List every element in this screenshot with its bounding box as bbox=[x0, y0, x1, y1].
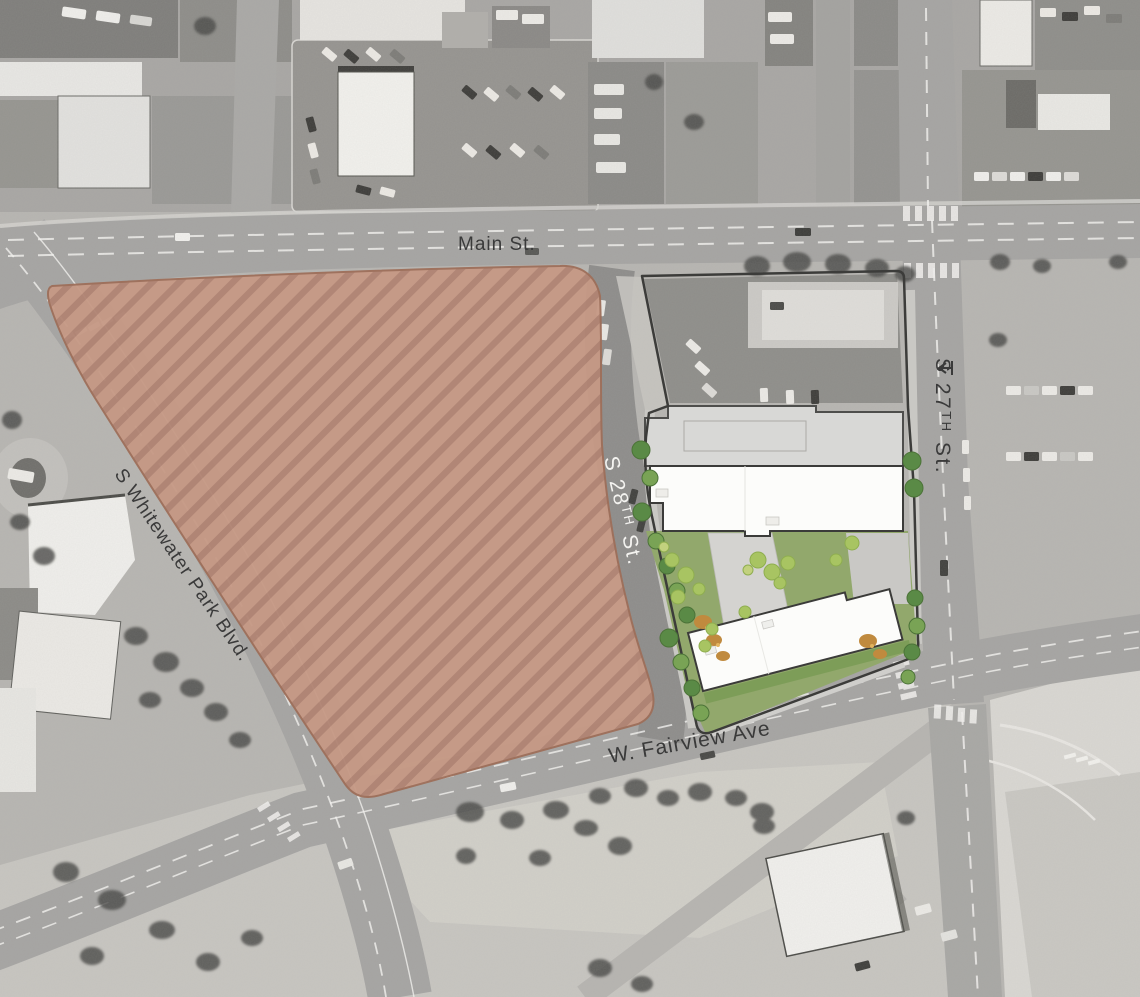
courtyard-tree bbox=[774, 577, 786, 589]
street-tree bbox=[909, 618, 925, 634]
courtyard-tree bbox=[739, 606, 751, 618]
street-tree bbox=[903, 452, 921, 470]
street-label-main: Main St. bbox=[458, 234, 536, 255]
courtyard-tree bbox=[750, 552, 766, 568]
street-tree bbox=[901, 670, 915, 684]
courtyard-tree bbox=[830, 554, 842, 566]
shrub bbox=[859, 634, 877, 648]
courtyard-tree bbox=[659, 542, 669, 552]
existing-building bbox=[645, 406, 903, 466]
roof-detail bbox=[656, 489, 668, 497]
courtyard-tree bbox=[665, 553, 679, 567]
street-tree bbox=[907, 590, 923, 606]
courtyard-tree bbox=[781, 556, 795, 570]
courtyard-tree bbox=[693, 583, 705, 595]
street-tree bbox=[693, 705, 709, 721]
courtyard-tree bbox=[743, 565, 753, 575]
aerial-map: Main St. S 27TH St. S 28TH St. W. Fairvi… bbox=[0, 0, 1140, 997]
courtyard-tree bbox=[671, 590, 685, 604]
street-tree bbox=[905, 479, 923, 497]
shrub bbox=[716, 651, 730, 661]
courtyard-tree bbox=[706, 623, 718, 635]
courtyard-tree bbox=[699, 640, 711, 652]
roof-detail bbox=[766, 517, 779, 525]
street-tree bbox=[684, 680, 700, 696]
courtyard-tree bbox=[678, 567, 694, 583]
shrub bbox=[873, 649, 887, 659]
street-tree bbox=[904, 644, 920, 660]
new-building-1 bbox=[650, 466, 903, 536]
street-tree bbox=[660, 629, 678, 647]
street-tree bbox=[632, 441, 650, 459]
street-tree bbox=[679, 607, 695, 623]
shrub-highlight bbox=[716, 643, 720, 647]
shrub-highlight bbox=[870, 644, 874, 648]
street-tree bbox=[642, 470, 658, 486]
courtyard-tree bbox=[845, 536, 859, 550]
street-tree bbox=[673, 654, 689, 670]
